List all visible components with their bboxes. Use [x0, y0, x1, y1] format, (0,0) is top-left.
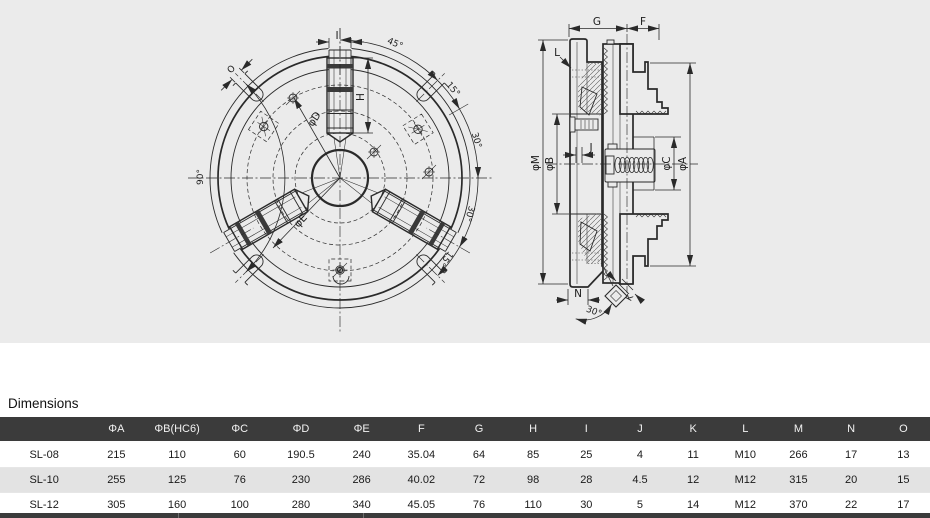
cell: 4.5 — [613, 468, 667, 493]
dim-n: N — [556, 288, 600, 305]
col-header-phid: ΦD — [270, 417, 332, 442]
cell: 110 — [144, 442, 209, 468]
cell: 286 — [332, 468, 391, 493]
cell: 315 — [771, 468, 825, 493]
cell: 11 — [667, 442, 719, 468]
dia-m-label: φM — [530, 155, 542, 171]
col-header-k: K — [667, 417, 719, 442]
dim-f: F — [627, 16, 659, 40]
col-header-h: H — [507, 417, 560, 442]
dim-g-label: G — [593, 16, 601, 28]
dim-g: G — [569, 16, 627, 37]
dim-k-label: K — [624, 292, 636, 303]
dim-h: H — [353, 58, 373, 133]
cell: M10 — [719, 442, 771, 468]
angle-30-label: 30° — [584, 305, 602, 320]
dia-d-label: φD — [305, 110, 323, 129]
model-cell: SL-08 — [0, 442, 88, 468]
col-header-m: M — [771, 417, 825, 442]
next-table-header-edge — [0, 513, 930, 518]
angle-dim-arc-right: 45° 15° 30° 30° 15° — [340, 36, 483, 275]
angle-30-upper-label: 30° — [469, 131, 483, 149]
cell: 4 — [613, 442, 667, 468]
cell: 72 — [451, 468, 506, 493]
col-header-j: J — [613, 417, 667, 442]
cell: 12 — [667, 468, 719, 493]
dimensions-title: Dimensions — [8, 396, 79, 411]
cell: 85 — [507, 442, 560, 468]
cell: 190.5 — [270, 442, 332, 468]
dia-a-label: φA — [677, 156, 689, 171]
col-header-phia: ΦA — [88, 417, 144, 442]
col-header-blank — [0, 417, 88, 442]
cell: 125 — [144, 468, 209, 493]
col-header-f: F — [391, 417, 451, 442]
cell: 240 — [332, 442, 391, 468]
side-view: G F L φM φB — [530, 16, 698, 320]
dim-angle-30: 30° — [576, 304, 612, 320]
col-header-i: I — [560, 417, 613, 442]
dim-l-label: L — [554, 47, 560, 59]
cell: 215 — [88, 442, 144, 468]
dim-l: L — [554, 47, 571, 68]
cell: M12 — [719, 468, 771, 493]
col-header-l: L — [719, 417, 771, 442]
col-header-o: O — [877, 417, 930, 442]
col-header-phie: ΦE — [332, 417, 391, 442]
dia-b-label: φB — [544, 157, 556, 171]
col-header-n: N — [826, 417, 877, 442]
cell: 25 — [560, 442, 613, 468]
dim-i-label: I — [335, 30, 338, 42]
front-view: I H φD φE — [188, 28, 492, 332]
table-row-sl10: SL-10 255 125 76 230 286 40.02 72 98 28 … — [0, 468, 930, 493]
angle-90-label: 90° — [196, 169, 206, 185]
dim-n-label: N — [574, 288, 582, 300]
table-header-row: ΦA ΦB(HC6) ΦC ΦD ΦE F G H I J K L M N O — [0, 417, 930, 442]
bottom-notch-arc — [333, 276, 349, 284]
cell: 17 — [826, 442, 877, 468]
dimensions-table: ΦA ΦB(HC6) ΦC ΦD ΦE F G H I J K L M N O … — [0, 417, 930, 518]
cell: 255 — [88, 468, 144, 493]
cell: 98 — [507, 468, 560, 493]
dim-f-label: F — [640, 16, 646, 28]
cell: 60 — [210, 442, 270, 468]
table-row-sl08: SL-08 215 110 60 190.5 240 35.04 64 85 2… — [0, 442, 930, 468]
cell: 266 — [771, 442, 825, 468]
chuck-drawing: I H φD φE — [0, 0, 930, 343]
cell: 76 — [210, 468, 270, 493]
angle-45-label: 45° — [385, 36, 404, 51]
cell: 20 — [826, 468, 877, 493]
dim-j-label: J — [588, 142, 592, 154]
cell: 13 — [877, 442, 930, 468]
model-cell: SL-10 — [0, 468, 88, 493]
dim-h-label: H — [355, 93, 367, 101]
angle-30-lower-label: 30° — [462, 205, 476, 223]
cell: 15 — [877, 468, 930, 493]
col-header-g: G — [451, 417, 506, 442]
col-header-phic: ΦC — [210, 417, 270, 442]
cell: 64 — [451, 442, 506, 468]
cell: 35.04 — [391, 442, 451, 468]
pinion-screw — [574, 119, 598, 130]
cell: 28 — [560, 468, 613, 493]
cell: 40.02 — [391, 468, 451, 493]
cell: 230 — [270, 468, 332, 493]
page: I H φD φE — [0, 0, 930, 518]
angle-15-lower-label: 15° — [437, 249, 455, 268]
col-header-phib: ΦB(HC6) — [144, 417, 209, 442]
dia-c-label: φC — [661, 156, 673, 170]
technical-drawing-canvas: I H φD φE — [0, 0, 930, 343]
angle-15-upper-label: 15° — [444, 80, 462, 99]
